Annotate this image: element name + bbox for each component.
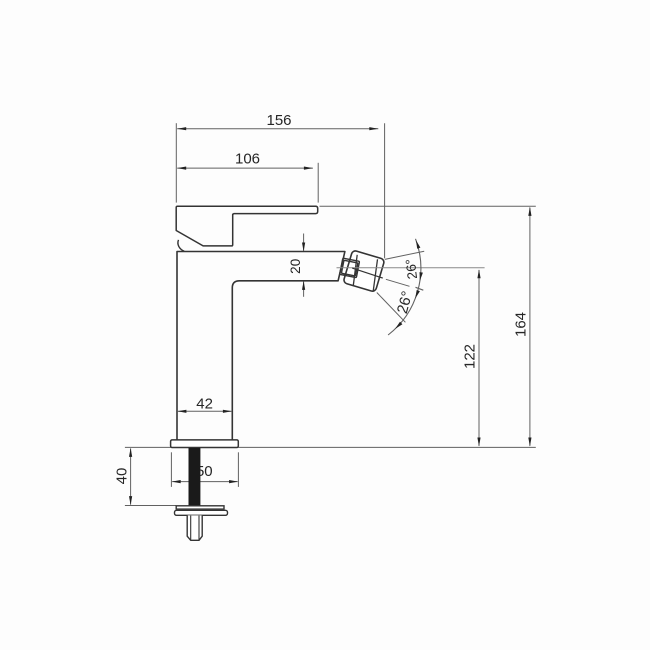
svg-text:106: 106	[235, 151, 260, 168]
svg-text:164: 164	[513, 312, 530, 337]
svg-text:26°: 26°	[403, 258, 420, 280]
svg-text:42: 42	[196, 395, 213, 412]
svg-text:122: 122	[462, 344, 479, 369]
svg-text:156: 156	[266, 112, 291, 129]
svg-text:20: 20	[288, 259, 303, 274]
svg-text:40: 40	[113, 468, 130, 485]
